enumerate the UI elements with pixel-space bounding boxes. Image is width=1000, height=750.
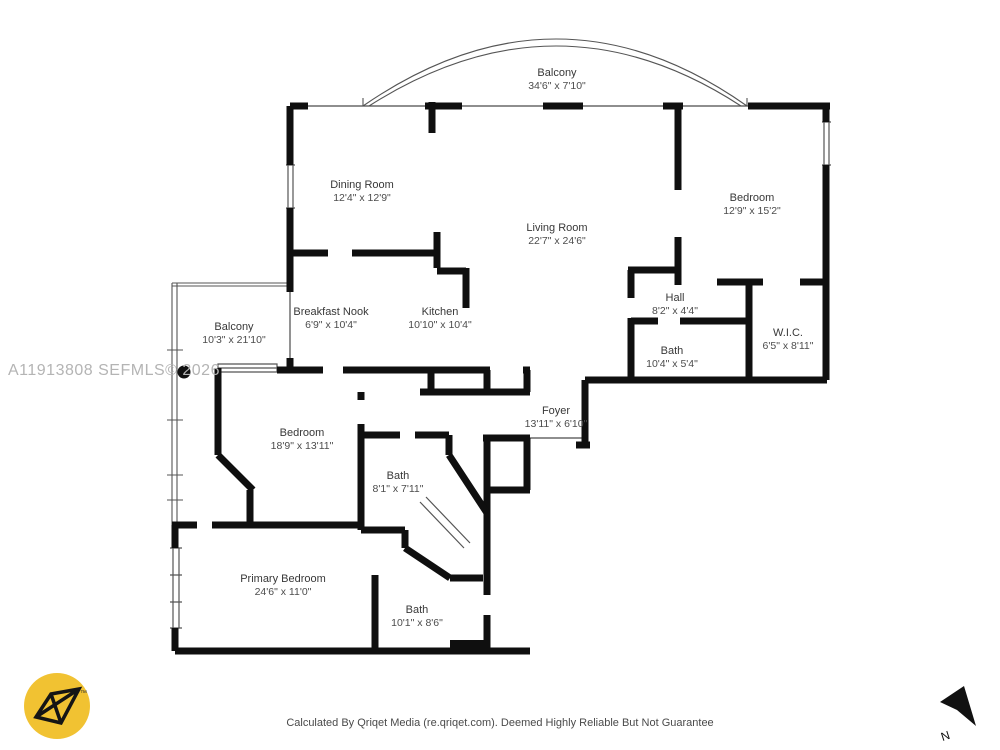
wall-entry: [483, 435, 530, 651]
logo-trademark: ™: [80, 690, 87, 697]
footer-disclaimer: Calculated By Qriqet Media (re.qriqet.co…: [0, 717, 1000, 729]
wall-dining: [287, 232, 466, 308]
balcony-arc: [363, 39, 747, 106]
wall-foyer: [576, 380, 590, 445]
mls-watermark: A11913808 SEFMLS© 2026: [8, 362, 220, 380]
wall-bedroom-mid: [218, 368, 253, 525]
windows-layer: [170, 122, 831, 628]
wall-kitchen: [277, 370, 530, 392]
wall-top: [290, 102, 830, 133]
balcony-rail: [167, 283, 290, 525]
qriqet-logo-icon: [24, 673, 90, 739]
wall-hall: [628, 270, 827, 380]
wall-bath-mid: [358, 392, 487, 651]
walls-layer: [172, 102, 830, 651]
wall-primary: [172, 525, 530, 651]
thin-lines-layer: [290, 106, 830, 438]
floorplan-canvas: A11913808 SEFMLS© 2026 Balcony34'6" x 7'…: [0, 0, 1000, 750]
